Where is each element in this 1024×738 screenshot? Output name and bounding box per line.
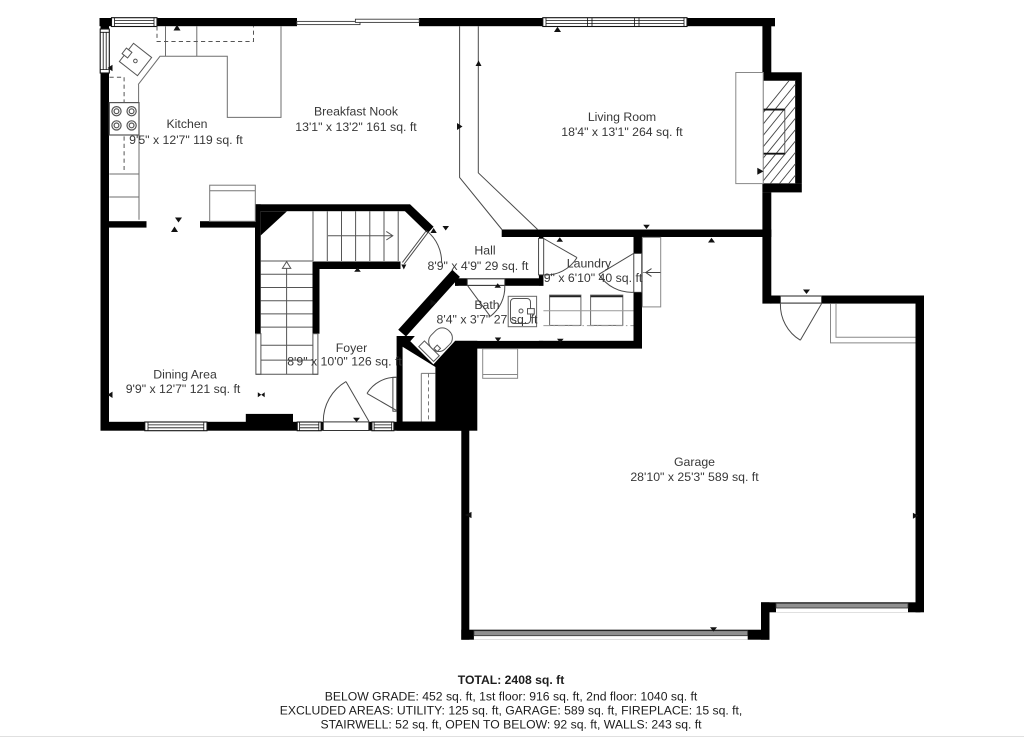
svg-text:Garage: Garage bbox=[674, 455, 715, 469]
svg-text:STAIRWELL: 52 sq. ft, OPEN TO: STAIRWELL: 52 sq. ft, OPEN TO BELOW: 92 … bbox=[320, 717, 702, 731]
svg-text:Kitchen: Kitchen bbox=[166, 117, 207, 131]
svg-text:8'9" x 4'9" 29 sq. ft: 8'9" x 4'9" 29 sq. ft bbox=[428, 259, 530, 273]
svg-text:8'9" x 10'0" 126 sq. ft: 8'9" x 10'0" 126 sq. ft bbox=[287, 355, 402, 369]
svg-text:28'10" x 25'3" 589 sq. ft: 28'10" x 25'3" 589 sq. ft bbox=[630, 470, 759, 484]
svg-text:BELOW GRADE: 452 sq. ft, 1st f: BELOW GRADE: 452 sq. ft, 1st floor: 916 … bbox=[325, 689, 698, 703]
svg-text:Laundry: Laundry bbox=[567, 256, 612, 270]
svg-text:Living Room: Living Room bbox=[588, 110, 656, 124]
svg-text:9" x 6'10" 40 sq. ft: 9" x 6'10" 40 sq. ft bbox=[544, 271, 643, 285]
svg-text:Dining Area: Dining Area bbox=[153, 368, 217, 382]
svg-text:Bath: Bath bbox=[474, 298, 499, 312]
svg-text:TOTAL: 2408 sq. ft: TOTAL: 2408 sq. ft bbox=[458, 673, 565, 687]
svg-text:EXCLUDED AREAS: UTILITY: 125 s: EXCLUDED AREAS: UTILITY: 125 sq. ft, GAR… bbox=[280, 703, 743, 717]
svg-text:Breakfast Nook: Breakfast Nook bbox=[314, 105, 399, 119]
svg-text:13'1" x 13'2" 161 sq. ft: 13'1" x 13'2" 161 sq. ft bbox=[295, 120, 417, 134]
svg-text:18'4" x 13'1" 264 sq. ft: 18'4" x 13'1" 264 sq. ft bbox=[561, 125, 683, 139]
svg-text:Foyer: Foyer bbox=[336, 341, 367, 355]
svg-text:9'5" x 12'7" 119 sq. ft: 9'5" x 12'7" 119 sq. ft bbox=[129, 133, 243, 147]
svg-text:8'4" x 3'7" 27 sq. ft: 8'4" x 3'7" 27 sq. ft bbox=[437, 313, 539, 327]
svg-text:Hall: Hall bbox=[474, 244, 495, 258]
svg-text:9'9" x 12'7" 121 sq. ft: 9'9" x 12'7" 121 sq. ft bbox=[126, 382, 241, 396]
